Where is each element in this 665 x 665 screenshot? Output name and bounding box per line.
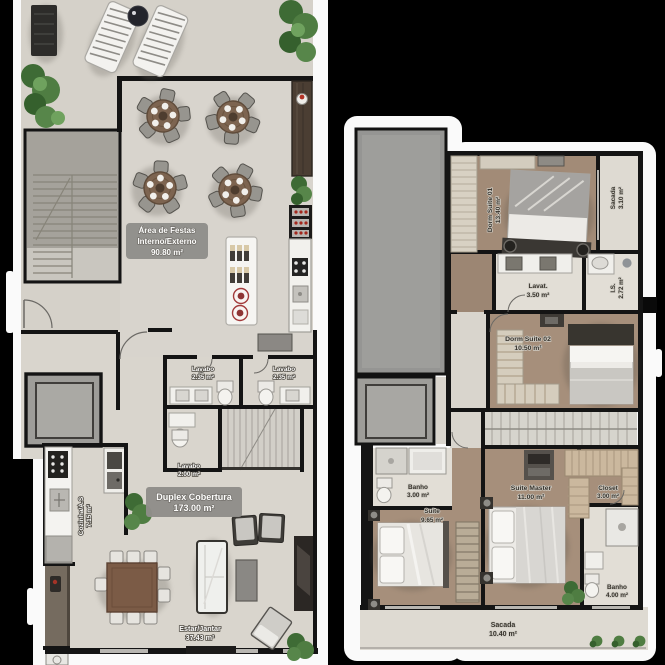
- svg-text:Duplex Cobertura: Duplex Cobertura: [156, 492, 233, 502]
- svg-text:Lavabo: Lavabo: [178, 463, 200, 470]
- svg-text:3.00 m²: 3.00 m²: [597, 493, 619, 500]
- svg-text:3.00 m²: 3.00 m²: [407, 492, 429, 499]
- svg-text:Lavat.: Lavat.: [528, 283, 547, 290]
- svg-text:9.65 m²: 9.65 m²: [421, 517, 443, 524]
- svg-text:Sacada: Sacada: [491, 622, 516, 629]
- svg-text:Sacada: Sacada: [610, 186, 617, 209]
- svg-text:2.00 m²: 2.00 m²: [178, 471, 200, 478]
- svg-text:173.00 m²: 173.00 m²: [173, 503, 214, 513]
- svg-text:10.50 m²: 10.50 m²: [514, 345, 542, 352]
- svg-text:13.40 m²: 13.40 m²: [495, 196, 502, 223]
- svg-text:Lavabo: Lavabo: [192, 366, 214, 373]
- svg-text:Cozinha/A.S: Cozinha/A.S: [78, 496, 85, 535]
- svg-text:Dorm Suite 02: Dorm Suite 02: [505, 336, 551, 343]
- svg-text:Banho: Banho: [408, 484, 428, 491]
- svg-text:2.35 m²: 2.35 m²: [273, 374, 295, 381]
- svg-text:4.00 m²: 4.00 m²: [606, 592, 628, 599]
- svg-text:37.43 m²: 37.43 m²: [186, 633, 215, 642]
- svg-text:3.10 m²: 3.10 m²: [618, 187, 625, 209]
- svg-text:Estar/Jantar: Estar/Jantar: [179, 624, 221, 633]
- svg-text:Suite Master: Suite Master: [511, 485, 552, 492]
- svg-text:10.40 m²: 10.40 m²: [489, 631, 518, 638]
- svg-text:Interno/Externo: Interno/Externo: [137, 237, 196, 246]
- svg-text:7.15 m²: 7.15 m²: [86, 504, 93, 528]
- svg-text:Lavabo: Lavabo: [273, 366, 295, 373]
- svg-text:Banho: Banho: [607, 584, 627, 591]
- svg-text:I.S.: I.S.: [610, 283, 617, 293]
- svg-text:Closet: Closet: [598, 485, 618, 492]
- svg-text:3.50 m²: 3.50 m²: [527, 292, 551, 299]
- svg-text:Dorm Suite 01: Dorm Suite 01: [487, 188, 494, 233]
- svg-text:2.72 m²: 2.72 m²: [618, 277, 625, 298]
- svg-text:90.80 m²: 90.80 m²: [151, 248, 183, 257]
- svg-text:Área de Festas: Área de Festas: [139, 226, 196, 235]
- svg-text:11.00 m²: 11.00 m²: [518, 494, 546, 501]
- svg-text:2.35 m²: 2.35 m²: [192, 374, 214, 381]
- svg-text:Suite: Suite: [424, 508, 440, 515]
